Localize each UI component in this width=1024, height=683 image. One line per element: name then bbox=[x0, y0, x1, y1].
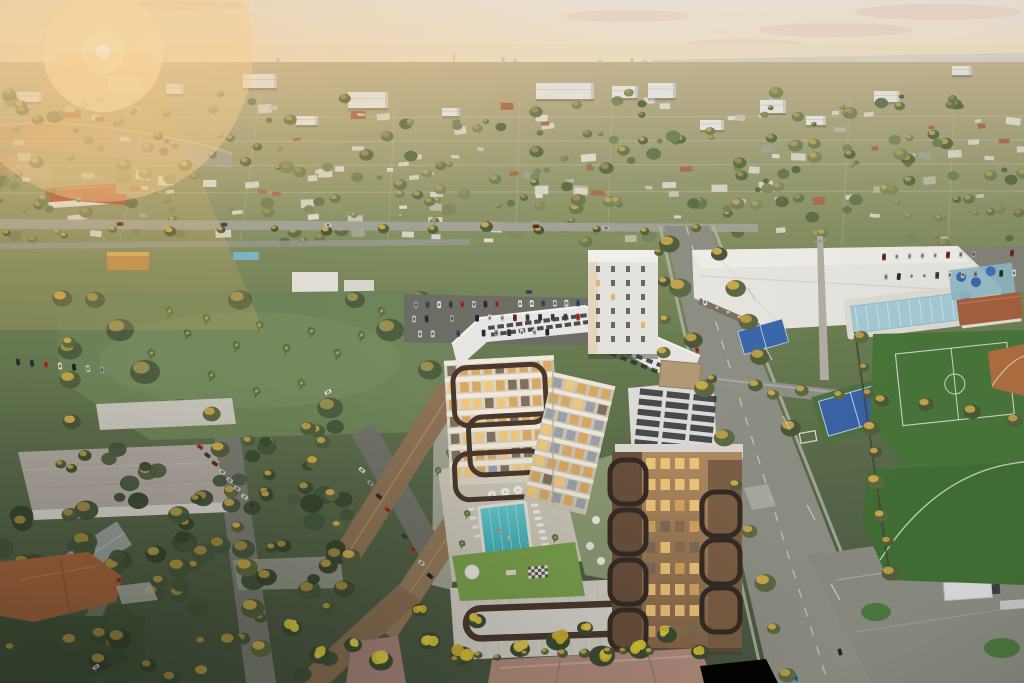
aerial-sunset-rendering bbox=[0, 0, 1024, 683]
scene-canvas bbox=[0, 0, 1024, 683]
vignette bbox=[0, 0, 1024, 683]
